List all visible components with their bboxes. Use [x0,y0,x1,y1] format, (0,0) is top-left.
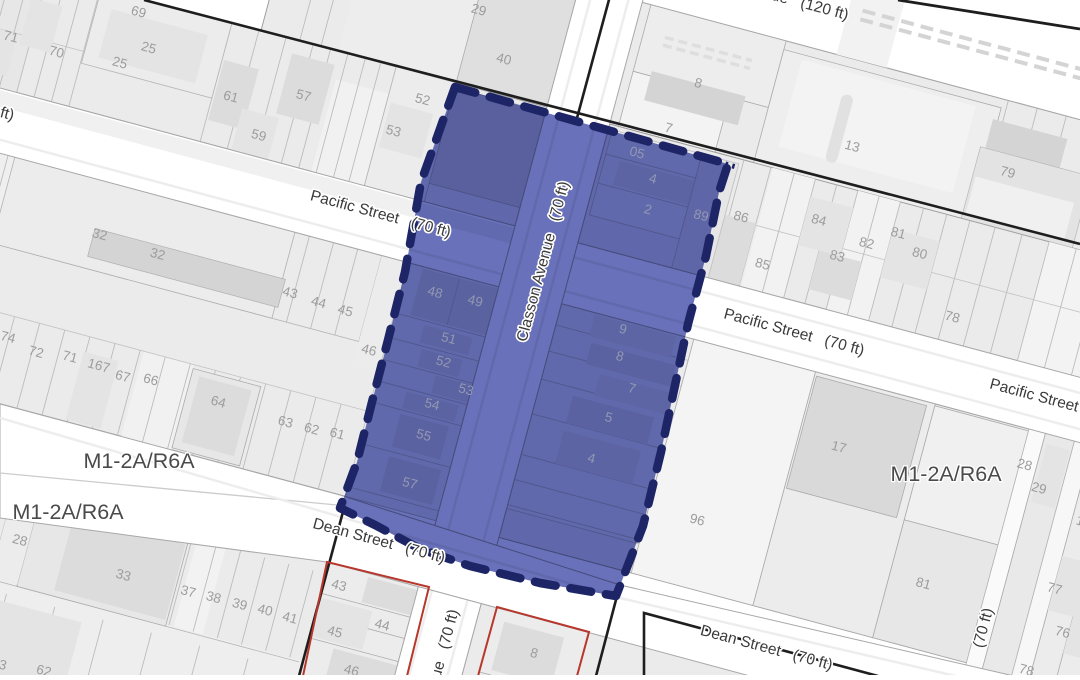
svg-text:M1-2A/R6A: M1-2A/R6A [890,462,1002,486]
svg-text:M1-2A/R6A: M1-2A/R6A [83,449,195,473]
svg-text:M1-2A/R6A: M1-2A/R6A [12,500,124,524]
